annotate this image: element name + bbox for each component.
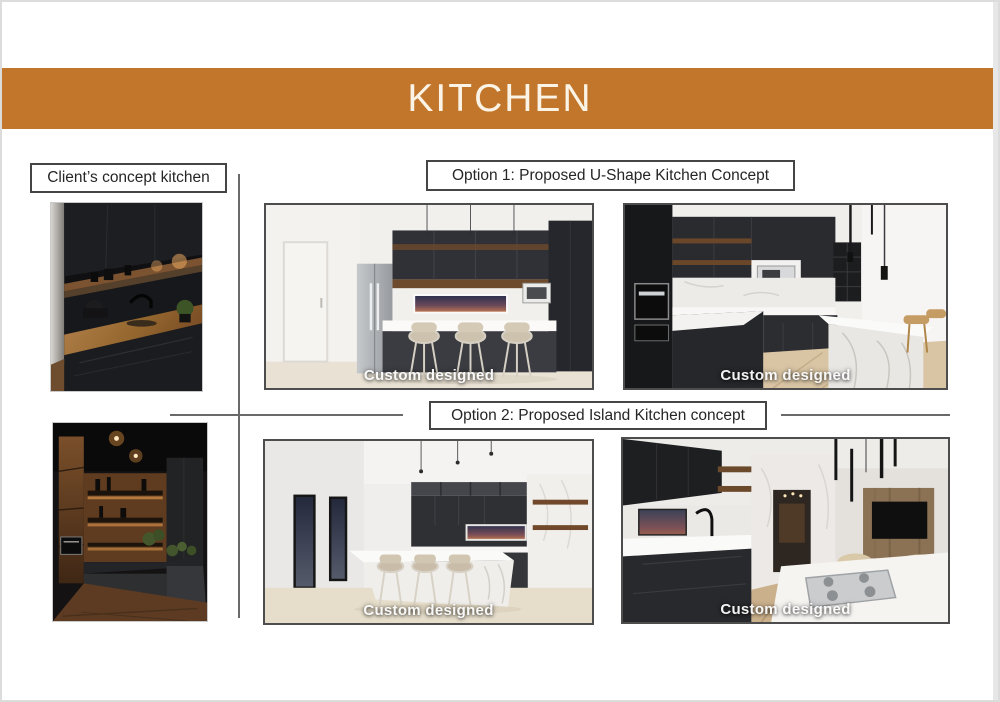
watermark: Custom designed: [266, 367, 592, 384]
option1-render-2: Custom designed: [623, 203, 948, 390]
watermark: Custom designed: [623, 601, 948, 618]
option2-label: Option 2: Proposed Island Kitchen concep…: [429, 401, 767, 430]
option1-render-1: Custom designed: [264, 203, 594, 390]
page-right-edge: [993, 2, 998, 700]
client-photo-1: [50, 202, 203, 392]
option1-label-text: Option 1: Proposed U-Shape Kitchen Conce…: [452, 167, 769, 185]
client-concept-label: Client’s concept kitchen: [30, 163, 227, 193]
option2-render-1: Custom designed: [263, 439, 594, 625]
horizontal-divider-left: [170, 414, 403, 416]
title-bar: KITCHEN: [2, 68, 998, 129]
page-title: KITCHEN: [407, 77, 592, 121]
slide-page: KITCHEN Client’s concept kitchen Option …: [0, 0, 1000, 702]
option1-label: Option 1: Proposed U-Shape Kitchen Conce…: [426, 160, 795, 191]
watermark: Custom designed: [265, 602, 592, 619]
watermark: Custom designed: [625, 367, 946, 384]
horizontal-divider-right: [781, 414, 950, 416]
client-concept-label-text: Client’s concept kitchen: [47, 169, 210, 187]
vertical-divider: [238, 174, 240, 618]
client-photo-2: [52, 422, 208, 622]
option2-label-text: Option 2: Proposed Island Kitchen concep…: [451, 407, 745, 425]
option2-render-2: Custom designed: [621, 437, 950, 624]
